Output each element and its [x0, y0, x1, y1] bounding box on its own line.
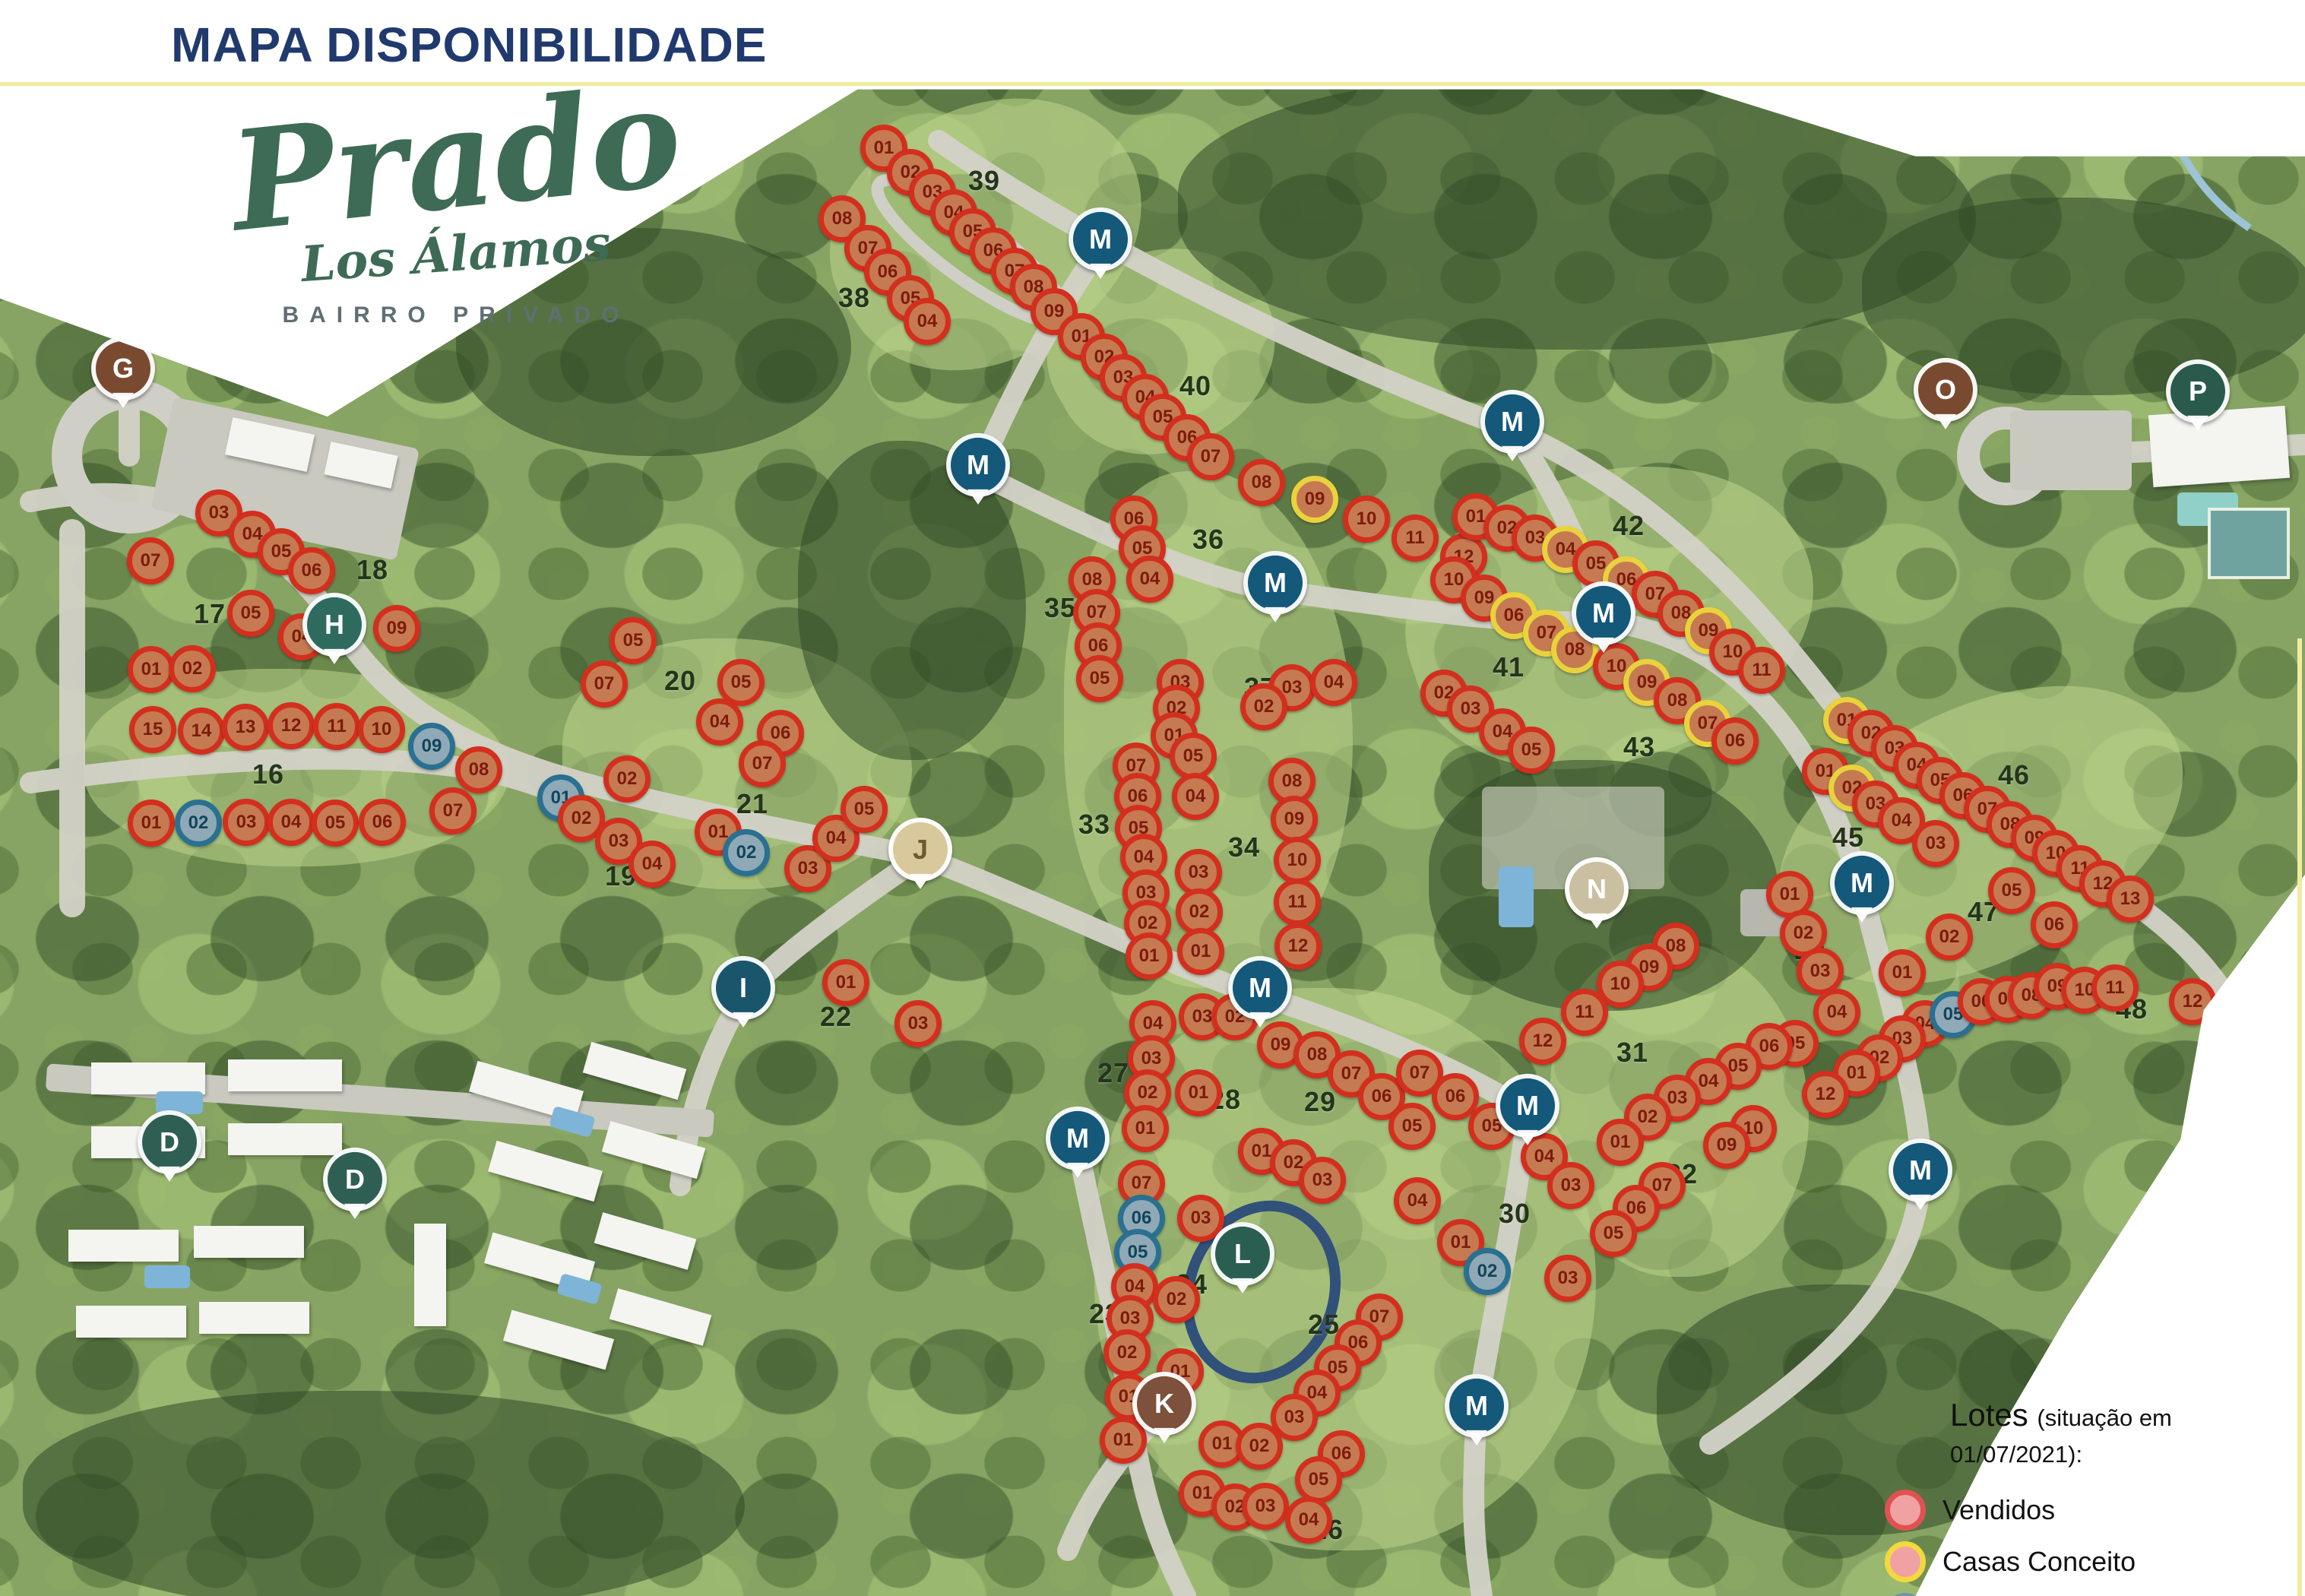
map-pin-J[interactable]: J [888, 818, 952, 882]
legend-label: Vendidos [1942, 1494, 2055, 1526]
map-pin-M[interactable]: M [1046, 1107, 1110, 1170]
lot-marker-vendido[interactable]: 15 [129, 706, 176, 753]
lot-marker-vendido[interactable]: 04 [628, 841, 676, 888]
lot-marker-vendido[interactable]: 10 [1343, 496, 1390, 543]
lot-marker-vendido[interactable]: 01 [1879, 949, 1926, 996]
block-label-18: 18 [356, 554, 388, 586]
lot-marker-vendido[interactable]: 07 [739, 740, 786, 787]
lot-marker-vendido[interactable]: 01 [128, 800, 175, 847]
legend: Lotes (situação em 01/07/2021): Vendidos… [1885, 1397, 2305, 1596]
block-label-17: 17 [194, 598, 226, 630]
lot-marker-conceito[interactable]: 09 [1291, 476, 1338, 523]
legend-item-conceito: Casas Conceito [1885, 1541, 2305, 1582]
lot-marker-vendido[interactable]: 08 [455, 746, 502, 793]
lot-marker-vendido[interactable]: 05 [1076, 655, 1123, 702]
block-label-43: 43 [1623, 731, 1655, 763]
map-pin-K[interactable]: K [1132, 1372, 1196, 1436]
lot-marker-vendido[interactable]: 13 [222, 704, 269, 751]
building [194, 1226, 304, 1258]
page-title: MAPA DISPONIBILIDADE [171, 17, 767, 73]
lot-marker-vendido[interactable]: 11 [2091, 964, 2139, 1012]
parking-lot [2010, 410, 2132, 490]
lot-marker-vendido[interactable]: 01 [822, 959, 869, 1006]
block-label-41: 41 [1493, 651, 1525, 683]
lot-marker-vendido[interactable]: 01 [1126, 933, 1173, 980]
map-pin-O[interactable]: O [1914, 358, 1977, 422]
lot-marker-vendido[interactable]: 02 [1103, 1329, 1151, 1376]
lot-marker-vendido[interactable]: 06 [1711, 717, 1759, 765]
lot-marker-vendido[interactable]: 03 [1912, 820, 1959, 867]
lot-marker-vendido[interactable]: 05 [1590, 1210, 1637, 1257]
pool [144, 1265, 190, 1288]
lot-marker-vendido[interactable]: 07 [1187, 433, 1234, 480]
lot-marker-vendido[interactable]: 11 [1738, 647, 1785, 694]
lot-marker-vendido[interactable]: 07 [127, 537, 174, 584]
map-pin-D[interactable]: D [323, 1148, 387, 1211]
map-pin-M[interactable]: M [946, 433, 1010, 497]
lot-marker-vendido[interactable]: 02 [1236, 1423, 1283, 1470]
conceito-legend-dot [1885, 1541, 1926, 1582]
lot-marker-vendido[interactable]: 02 [169, 645, 216, 692]
lot-marker-vendido[interactable]: 02 [1926, 914, 1973, 961]
lot-marker-vendido[interactable]: 04 [904, 298, 951, 345]
lot-marker-reserva[interactable]: 02 [175, 800, 222, 847]
lot-marker-vendido[interactable]: 05 [609, 617, 657, 664]
lot-marker-vendido[interactable]: 04 [1394, 1177, 1441, 1224]
map-pin-D[interactable]: D [138, 1110, 201, 1174]
lot-marker-vendido[interactable]: 01 [1122, 1105, 1169, 1152]
lot-marker-vendido[interactable]: 08 [1238, 459, 1285, 506]
accent-rule [0, 82, 2305, 86]
lot-marker-vendido[interactable]: 03 [1299, 1157, 1346, 1204]
lot-marker-vendido[interactable]: 03 [1242, 1483, 1289, 1530]
lot-marker-vendido[interactable]: 05 [1508, 727, 1555, 774]
lot-marker-vendido[interactable]: 04 [268, 799, 315, 846]
lot-marker-vendido[interactable]: 03 [1544, 1255, 1591, 1302]
lot-marker-vendido[interactable]: 12 [1519, 1018, 1566, 1065]
lot-marker-vendido[interactable]: 13 [2107, 876, 2154, 923]
lot-marker-vendido[interactable]: 01 [1597, 1119, 1644, 1166]
building [199, 1302, 309, 1334]
lot-marker-vendido[interactable]: 03 [223, 799, 270, 846]
lot-marker-vendido[interactable]: 04 [696, 698, 743, 746]
lot-marker-reserva[interactable]: 02 [1464, 1248, 1511, 1295]
map-pin-M[interactable]: M [1445, 1374, 1509, 1438]
block-label-30: 30 [1499, 1198, 1531, 1230]
lot-marker-vendido[interactable]: 09 [373, 605, 420, 652]
lot-marker-vendido[interactable]: 04 [1126, 556, 1173, 603]
block-label-31: 31 [1616, 1037, 1648, 1069]
map-pin-M[interactable]: M [1228, 956, 1292, 1020]
map-pin-M[interactable]: M [1572, 581, 1635, 645]
legend-item-vendido: Vendidos [1885, 1490, 2305, 1531]
lot-marker-vendido[interactable]: 12 [1274, 923, 1322, 970]
availability-map-page: 1617181920212223242526272829303132333435… [0, 0, 2305, 1596]
block-label-36: 36 [1192, 524, 1224, 556]
block-label-39: 39 [968, 165, 1000, 197]
lot-marker-vendido[interactable]: 12 [1802, 1071, 1849, 1118]
lot-marker-reserva[interactable]: 02 [723, 829, 770, 876]
lot-marker-vendido[interactable]: 07 [581, 660, 628, 708]
building [68, 1230, 179, 1262]
map-pin-H[interactable]: H [302, 593, 366, 657]
lot-marker-vendido[interactable]: 03 [1547, 1162, 1594, 1209]
brand-logo: Prado Los Álamos BAIRRO PRIVADO [213, 99, 699, 328]
block-label-34: 34 [1228, 831, 1260, 863]
lot-marker-vendido[interactable]: 05 [1295, 1456, 1342, 1503]
lot-marker-vendido[interactable]: 10 [1274, 837, 1321, 884]
reserva-legend-dot [1885, 1593, 1926, 1596]
lot-marker-vendido[interactable]: 05 [841, 786, 888, 833]
lot-marker-vendido[interactable]: 01 [1177, 928, 1224, 975]
lot-marker-vendido[interactable]: 02 [1153, 1276, 1200, 1323]
block-label-46: 46 [1998, 759, 2030, 791]
lot-marker-vendido[interactable]: 11 [1392, 515, 1439, 562]
lot-marker-vendido[interactable]: 04 [1285, 1496, 1332, 1544]
lot-marker-reserva[interactable]: 09 [408, 723, 455, 770]
legend-item-reserva: Reservas em Negociação [1885, 1593, 2305, 1596]
block-label-40: 40 [1179, 370, 1211, 402]
legend-rows: VendidosCasas ConceitoReservas em Negoci… [1885, 1490, 2305, 1596]
block-label-33: 33 [1078, 809, 1110, 841]
lot-marker-vendido[interactable]: 06 [288, 547, 335, 594]
lot-marker-vendido[interactable]: 11 [313, 703, 360, 750]
lot-marker-vendido[interactable]: 01 [1175, 1069, 1222, 1116]
lot-marker-vendido[interactable]: 05 [312, 800, 359, 847]
block-label-27: 27 [1097, 1057, 1129, 1089]
lot-marker-vendido[interactable]: 12 [2169, 978, 2216, 1025]
lot-marker-vendido[interactable]: 07 [429, 787, 477, 834]
lot-marker-vendido[interactable]: 10 [358, 706, 405, 753]
block-label-45: 45 [1832, 822, 1864, 853]
legend-title-main: Lotes [1950, 1397, 2028, 1433]
lot-marker-vendido[interactable]: 05 [1988, 867, 2035, 914]
lot-marker-vendido[interactable]: 03 [1797, 948, 1844, 995]
lot-marker-vendido[interactable]: 09 [1703, 1122, 1750, 1169]
lot-marker-vendido[interactable]: 06 [2031, 901, 2078, 948]
logo-tagline: BAIRRO PRIVADO [213, 302, 699, 328]
building [414, 1224, 446, 1326]
lot-marker-vendido[interactable]: 09 [1271, 796, 1318, 843]
building [228, 1059, 342, 1091]
map-pin-L[interactable]: L [1211, 1222, 1274, 1286]
building [91, 1062, 205, 1094]
lot-marker-vendido[interactable]: 01 [128, 646, 175, 693]
lot-marker-vendido[interactable]: 12 [268, 702, 315, 749]
block-label-21: 21 [736, 788, 768, 820]
legend-title: Lotes (situação em 01/07/2021): [1950, 1397, 2305, 1470]
lot-marker-vendido[interactable]: 05 [1388, 1103, 1436, 1150]
block-label-20: 20 [664, 665, 696, 697]
block-label-38: 38 [838, 282, 870, 314]
block-label-16: 16 [252, 758, 284, 790]
map-pin-M[interactable]: M [1496, 1074, 1559, 1138]
lot-marker-vendido[interactable]: 04 [1310, 659, 1357, 706]
building [76, 1306, 186, 1338]
map-pin-P[interactable]: P [2166, 359, 2230, 423]
block-label-29: 29 [1304, 1086, 1336, 1118]
map-pin-N[interactable]: N [1565, 857, 1629, 921]
lot-marker-vendido[interactable]: 06 [359, 799, 406, 846]
lot-marker-vendido[interactable]: 04 [1813, 989, 1860, 1036]
lot-marker-vendido[interactable]: 11 [1561, 989, 1608, 1036]
vendido-legend-dot [1885, 1490, 1926, 1531]
map-pin-M[interactable]: M [1480, 390, 1544, 454]
lot-marker-vendido[interactable]: 04 [1172, 773, 1219, 820]
tennis-court [2208, 508, 2290, 579]
lot-marker-vendido[interactable]: 14 [178, 708, 225, 755]
lot-marker-vendido[interactable]: 13 [2215, 996, 2262, 1043]
map-pin-I[interactable]: I [711, 956, 775, 1020]
lot-marker-vendido[interactable]: 02 [1240, 683, 1287, 730]
map-pin-M[interactable]: M [1830, 851, 1894, 915]
lot-marker-vendido[interactable]: 05 [227, 590, 274, 637]
block-label-35: 35 [1044, 592, 1076, 624]
map-pin-M[interactable]: M [1243, 551, 1307, 615]
map-pin-M[interactable]: M [1889, 1138, 1952, 1202]
block-label-42: 42 [1613, 510, 1645, 542]
park-pool [1499, 866, 1534, 927]
clubhouse [2148, 406, 2290, 487]
lot-marker-vendido[interactable]: 11 [1274, 879, 1321, 926]
lot-marker-vendido[interactable]: 03 [894, 1000, 942, 1047]
map-pin-M[interactable]: M [1069, 207, 1132, 271]
map-pin-G[interactable]: G [91, 337, 155, 401]
lot-marker-vendido[interactable]: 02 [603, 755, 651, 803]
building [228, 1123, 342, 1155]
legend-label: Casas Conceito [1942, 1546, 2136, 1578]
